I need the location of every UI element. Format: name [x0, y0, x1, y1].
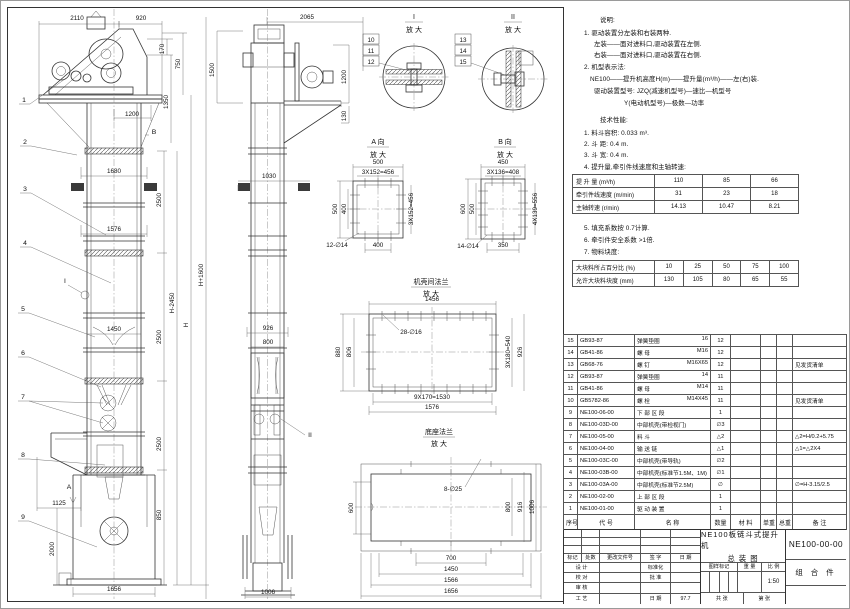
- bom-total-weight: [777, 371, 793, 383]
- note-line: 驱动装置型号: JZQ(减速机型号)—速比—机型号: [594, 86, 731, 95]
- bom-part-code: NE100-04-00: [578, 443, 635, 455]
- balloon-9: 9: [21, 514, 25, 521]
- bom-row: 1 NE100-01-00 驱 动 装 置 1: [564, 503, 847, 515]
- view-a-arrow-label: A: [67, 484, 72, 491]
- cell: 65: [741, 274, 770, 287]
- view-a-title: A 向: [371, 137, 384, 146]
- detail-ii-view: II 放 大 13 14 15: [455, 14, 548, 113]
- bom-part-code: NE100-06-00: [578, 407, 635, 419]
- role-approver: 批 准: [641, 573, 671, 582]
- tech-item: 7. 物料块度:: [584, 247, 619, 256]
- balloon-5: 5: [21, 306, 25, 313]
- cell: 50: [712, 261, 741, 274]
- role-checker: 校 对: [564, 573, 600, 582]
- dim-label: 2500: [156, 437, 163, 452]
- bom-total-weight: [777, 359, 793, 371]
- note-line: 右装——面对进料口,驱动装置在右侧.: [594, 50, 702, 59]
- bom-material: [731, 371, 761, 383]
- bom-item-number: 1: [564, 503, 578, 515]
- dim-label: 806: [346, 346, 353, 357]
- balloon-15: 15: [459, 59, 467, 66]
- dim-label: 2065: [300, 14, 315, 21]
- cell: 55: [770, 274, 799, 287]
- part-name-text: 料 斗: [637, 432, 650, 441]
- bom-row: 12 GB93-87 弹簧垫圈14 11: [564, 371, 847, 383]
- casing-flange-enlarged-view: 机壳间法兰 放 大 1456 880 806 28-∅16 3X180=540 …: [335, 277, 524, 415]
- bom-part-name: 螺 钉M16X65: [635, 359, 711, 371]
- bom-part-name: 中部机壳(标准节1.5M、1M): [635, 467, 711, 479]
- bom-unit-weight: [761, 395, 777, 407]
- dim-label: 2500: [156, 330, 163, 345]
- table-row: 牵引件线速度 (m/min) 31 23 18: [573, 188, 799, 201]
- dim-label: 170: [159, 43, 166, 54]
- bom-quantity: 1: [711, 491, 731, 503]
- bom-remark: [793, 491, 847, 503]
- bom-total-weight: [777, 479, 793, 491]
- rev-header-mark: 标记: [564, 554, 582, 562]
- bom-remark: [793, 407, 847, 419]
- bom-quantity: 12: [711, 347, 731, 359]
- detail-ii-balloons: 13 14 15: [455, 34, 505, 75]
- bom-unit-weight: [761, 443, 777, 455]
- dim-label: 1656: [107, 586, 122, 593]
- tech-item: 2. 斗 距: 0.4 m.: [584, 139, 628, 148]
- bom-item-number: 11: [564, 383, 578, 395]
- rev-header-count: 处数: [582, 554, 600, 562]
- view-b-title: B 向: [498, 137, 512, 146]
- bom-material: [731, 347, 761, 359]
- bom-item-number: 2: [564, 491, 578, 503]
- bom-row: 6 NE100-04-00 输 送 链 △1 △1=△2X4: [564, 443, 847, 455]
- part-name-text: 下 部 区 段: [637, 408, 665, 417]
- balloon-8: 8: [21, 452, 25, 459]
- part-name-text: 螺 栓: [637, 396, 650, 405]
- bom-material: [731, 395, 761, 407]
- tech-heading: 技术性能:: [600, 115, 628, 124]
- bom-part-name: 输 送 链: [635, 443, 711, 455]
- part-name-text: 中部机壳(带检视门): [637, 420, 686, 429]
- front-dimensions: 2110 920 170 750 1350 1200 1680 1576 145…: [37, 15, 209, 599]
- scale-value: 1:50: [762, 572, 785, 592]
- side-elevation-view: 2065 1500 1200 130 1030 926 800 1006 II: [209, 9, 363, 599]
- bom-quantity: 11: [711, 371, 731, 383]
- bom-part-name: 中部机壳(带检视门): [635, 419, 711, 431]
- note-line: 左装——面对进料口,驱动装置在左侧.: [594, 39, 702, 48]
- bom-header: 数量: [711, 515, 731, 530]
- balloon-4: 4: [23, 240, 27, 247]
- bom-part-name: 弹簧垫圈16: [635, 335, 711, 347]
- dim-label: H+1600: [198, 263, 205, 286]
- balloon-12: 12: [367, 59, 375, 66]
- bom-row: 4 NE100-03B-00 中部机壳(标准节1.5M、1M) ∅1: [564, 467, 847, 479]
- view-b-enlarged: B 向 放 大 450 3X136=408 600 500 4X139=556 …: [457, 137, 539, 253]
- bom-item-number: 12: [564, 371, 578, 383]
- dim-label: 3X180=540: [505, 335, 512, 368]
- part-name-text: 螺 母: [637, 348, 650, 357]
- base-flange-subtitle: 放 大: [431, 439, 447, 448]
- bom-part-code: NE100-03A-00: [578, 479, 635, 491]
- cell: 130: [655, 274, 684, 287]
- row-label: 大块料所占百分比 (%): [573, 261, 655, 274]
- tech-item: 6. 牵引件安全系数 >1倍.: [584, 235, 655, 244]
- bom-header: 备 注: [793, 515, 847, 530]
- date-label: 日 期: [641, 594, 671, 604]
- bom-material: [731, 383, 761, 395]
- rev-header-docno: 更改文件号: [600, 554, 641, 562]
- casing-flange-title: 机壳间法兰: [414, 277, 449, 286]
- dim-label: 1450: [444, 566, 459, 573]
- dim-label: 2500: [156, 193, 163, 208]
- bom-unit-weight: [761, 347, 777, 359]
- role-reviewer: 审 核: [564, 583, 600, 592]
- table-row: 主轴转速 (r/min) 14.13 10.47 8.21: [573, 201, 799, 214]
- dim-label: 4X139=556: [532, 192, 539, 225]
- dim-label: 920: [136, 15, 147, 22]
- detail-ii-subtitle: 放 大: [505, 25, 521, 34]
- bom-quantity: 1: [711, 407, 731, 419]
- bom-header: 单重: [761, 515, 777, 530]
- hole-callout: 8-∅25: [444, 486, 463, 493]
- bom-row: 8 NE100-03D-00 中部机壳(带检视门) ∅3: [564, 419, 847, 431]
- dim-label: 3X136=408: [487, 169, 520, 176]
- part-spec-text: M16: [697, 348, 708, 357]
- note-line: 2. 机型表示法:: [584, 62, 626, 71]
- view-b-arrow-label: B: [152, 129, 157, 136]
- detail-i-marker-label: I: [64, 278, 66, 285]
- cell: 31: [655, 188, 703, 201]
- bom-remark: [793, 347, 847, 359]
- dim-label: 2110: [70, 15, 84, 22]
- hole-callout: 12-∅14: [326, 242, 348, 249]
- part-spec-text: M14X45: [687, 396, 708, 405]
- dim-label: 1030: [262, 173, 277, 180]
- dim-label: 1450: [107, 326, 122, 333]
- bom-part-code: NE100-03B-00: [578, 467, 635, 479]
- bom-material: [731, 503, 761, 515]
- bom-total-weight: [777, 455, 793, 467]
- cell: 75: [741, 261, 770, 274]
- dim-label: 800: [505, 501, 512, 512]
- detail-ii-marker-label: II: [308, 432, 312, 439]
- dim-label: 926: [263, 325, 274, 332]
- bom-item-number: 15: [564, 335, 578, 347]
- dim-label: 1656: [444, 588, 459, 595]
- bom-total-weight: [777, 407, 793, 419]
- bom-part-code: NE100-05-00: [578, 431, 635, 443]
- dim-label: 1006: [261, 589, 276, 596]
- bom-unit-weight: [761, 359, 777, 371]
- part-spec-text: 16: [702, 336, 708, 345]
- bom-part-name: 中部机壳(标准节2.5M): [635, 479, 711, 491]
- bom-header: 代 号: [578, 515, 635, 530]
- bom-part-name: 上 部 区 段: [635, 491, 711, 503]
- dim-label: 1125: [52, 500, 66, 507]
- bom-material: [731, 359, 761, 371]
- cell: 66: [751, 175, 799, 188]
- lump-size-table: 大块料所占百分比 (%) 10 25 50 75 100 允许大块料块度 (mm…: [572, 260, 799, 287]
- bom-row: 10 GB5782-86 螺 栓M14X45 11 见发货清单: [564, 395, 847, 407]
- bom-row: 2 NE100-02-00 上 部 区 段 1: [564, 491, 847, 503]
- title-block-center: NE100板链斗式提升机 总 装 图 图样标记 重 量 比 例 1:50: [701, 530, 786, 604]
- bom-remark: 见发货清单: [793, 395, 847, 407]
- bom-remark: △2=H/0.2+5.75: [793, 431, 847, 443]
- bom-remark: [793, 455, 847, 467]
- bom-part-code: NE100-03D-00: [578, 419, 635, 431]
- bom-quantity: 11: [711, 383, 731, 395]
- bom-remark: [793, 335, 847, 347]
- bom-unit-weight: [761, 467, 777, 479]
- part-name-text: 中部机壳(标准节2.5M): [637, 480, 693, 489]
- dim-label: 1006: [529, 500, 536, 515]
- table-row: 允许大块料块度 (mm) 130 105 80 65 55: [573, 274, 799, 287]
- dim-label: 500: [373, 159, 384, 166]
- notes-heading: 说明:: [600, 15, 615, 24]
- bom-item-number: 7: [564, 431, 578, 443]
- bom-material: [731, 455, 761, 467]
- bom-quantity: ∅3: [711, 419, 731, 431]
- part-category: 组 合 件: [786, 560, 846, 586]
- dim-label: 9X170=1530: [414, 394, 450, 401]
- bom-row: 3 NE100-03A-00 中部机壳(标准节2.5M) ∅ ∅=H-3.15/…: [564, 479, 847, 491]
- role-standardization: 标准化: [641, 563, 671, 572]
- detail-i-title: I: [413, 14, 415, 21]
- part-spec-text: M14: [697, 384, 708, 393]
- bom-part-code: GB5782-86: [578, 395, 635, 407]
- bom-row: 9 NE100-06-00 下 部 区 段 1: [564, 407, 847, 419]
- row-label: 提 升 量 (m³/h): [573, 175, 655, 188]
- dim-label: 916: [517, 501, 524, 512]
- dim-label: 400: [341, 203, 348, 214]
- cell: 10: [655, 261, 684, 274]
- rev-header-date: 日 期: [671, 554, 700, 562]
- base-flange-dimensions: 600 8-∅25 800 916 1006 700 1450 1566 165…: [348, 459, 541, 599]
- capacity-speed-table: 提 升 量 (m³/h) 110 85 66 牵引件线速度 (m/min) 31…: [572, 174, 799, 214]
- bom-table: 15 GB93-87 弹簧垫圈16 12 14 GB41-86 螺 母M16: [563, 334, 847, 530]
- cell: 110: [655, 175, 703, 188]
- bom-part-code: NE100-01-00: [578, 503, 635, 515]
- stamp-header-scale: 比 例: [762, 563, 785, 571]
- bom-part-name: 中部机壳(带导轨): [635, 455, 711, 467]
- bom-part-name: 驱 动 装 置: [635, 503, 711, 515]
- bom-material: [731, 443, 761, 455]
- bom-row: 14 GB41-86 螺 母M16 12: [564, 347, 847, 359]
- bom-item-number: 13: [564, 359, 578, 371]
- dim-label: 350: [498, 242, 509, 249]
- bom-body: 15 GB93-87 弹簧垫圈16 12 14 GB41-86 螺 母M16: [564, 335, 847, 515]
- hole-callout: 14-∅14: [457, 243, 479, 250]
- cell: 80: [712, 274, 741, 287]
- bom-unit-weight: [761, 503, 777, 515]
- weight-value: [738, 572, 762, 592]
- dim-label: 450: [498, 159, 509, 166]
- base-flange-enlarged-view: 底座法兰 放 大 600 8-∅25 800 916 1006 700: [348, 427, 547, 599]
- dim-label: 1350: [163, 95, 170, 110]
- detail-ii-title: II: [511, 14, 515, 21]
- bom-material: [731, 431, 761, 443]
- note-line: Y(电动机型号)—极数—功率: [624, 98, 704, 107]
- bom-row: 11 GB41-86 螺 母M14 11: [564, 383, 847, 395]
- bom-total-weight: [777, 335, 793, 347]
- bom-item-number: 3: [564, 479, 578, 491]
- row-label: 允许大块料块度 (mm): [573, 274, 655, 287]
- bom-item-number: 6: [564, 443, 578, 455]
- table-row: 提 升 量 (m³/h) 110 85 66: [573, 175, 799, 188]
- dim-label: H-2450: [169, 292, 176, 313]
- dim-label: 3X152=456: [408, 192, 415, 225]
- bom-part-code: NE100-02-00: [578, 491, 635, 503]
- bom-item-number: 4: [564, 467, 578, 479]
- bom-total-weight: [777, 443, 793, 455]
- balloon-13: 13: [459, 37, 467, 44]
- bom-part-name: 下 部 区 段: [635, 407, 711, 419]
- bom-quantity: 1: [711, 503, 731, 515]
- cell: 8.21: [751, 201, 799, 214]
- tech-item: 3. 斗 宽: 0.4 m.: [584, 150, 628, 159]
- bom-total-weight: [777, 491, 793, 503]
- title-block-revision-area: 标记 处数 更改文件号 签 字 日 期 设 计 标准化 校 对 批 准: [564, 530, 701, 604]
- part-name-text: 中部机壳(标准节1.5M、1M): [637, 468, 707, 477]
- bom-material: [731, 335, 761, 347]
- bom-quantity: 12: [711, 335, 731, 347]
- dim-label: 1680: [107, 168, 122, 175]
- right-panel: 说明: 1. 驱动装置分左装和右装两种. 左装——面对进料口,驱动装置在左侧. …: [563, 7, 845, 604]
- bom-unit-weight: [761, 491, 777, 503]
- bom-unit-weight: [761, 407, 777, 419]
- view-a-dimensions: 500 3X152=456 500 400 3X152=456 400 12-∅…: [326, 159, 415, 253]
- bom-item-number: 14: [564, 347, 578, 359]
- bom-item-number: 8: [564, 419, 578, 431]
- bom-item-number: 10: [564, 395, 578, 407]
- dim-label: 750: [175, 58, 182, 69]
- balloon-1: 1: [22, 97, 26, 104]
- row-label: 牵引件线速度 (m/min): [573, 188, 655, 201]
- dim-label: 850: [156, 509, 163, 520]
- dim-label: 1200: [341, 70, 348, 85]
- bom-unit-weight: [761, 479, 777, 491]
- bom-header: 材 料: [731, 515, 761, 530]
- dim-label: 130: [341, 110, 348, 121]
- bom-total-weight: [777, 503, 793, 515]
- dim-label: 500: [332, 203, 339, 214]
- cell: 23: [703, 188, 751, 201]
- bom-part-name: 弹簧垫圈14: [635, 371, 711, 383]
- bom-total-weight: [777, 383, 793, 395]
- table-row: 大块料所占百分比 (%) 10 25 50 75 100: [573, 261, 799, 274]
- view-a-enlarged: A 向 放 大 500 3X152=456 500 400 3X152=456 …: [326, 137, 415, 253]
- title-block-number-area: NE100-00-00 组 合 件: [786, 530, 846, 604]
- cell: 100: [770, 261, 799, 274]
- bom-row: 7 NE100-05-00 料 斗 △2 △2=H/0.2+5.75: [564, 431, 847, 443]
- note-line: 1. 驱动装置分左装和右装两种.: [584, 28, 671, 37]
- part-spec-text: M16X65: [687, 360, 708, 369]
- base-flange-title: 底座法兰: [425, 427, 453, 436]
- dim-label: 700: [446, 555, 457, 562]
- part-name-text: 输 送 链: [637, 444, 657, 453]
- tech-item: 1. 料斗容积: 0.033 m³.: [584, 128, 649, 137]
- rev-header-signature: 签 字: [641, 554, 671, 562]
- part-name-text: 弹簧垫圈: [637, 372, 660, 381]
- bom-unit-weight: [761, 383, 777, 395]
- sheet-number-label: 第 张: [744, 593, 786, 604]
- balloon-14: 14: [459, 48, 467, 55]
- role-designer: 设 计: [564, 563, 600, 572]
- bom-quantity: ∅2: [711, 455, 731, 467]
- part-name-text: 中部机壳(带导轨): [637, 456, 681, 465]
- drawing-title-line1: NE100板链斗式提升机: [701, 529, 785, 551]
- balloon-2: 2: [23, 139, 27, 146]
- bom-quantity: 12: [711, 359, 731, 371]
- bom-quantity: ∅1: [711, 467, 731, 479]
- drawing-number: NE100-00-00: [786, 530, 846, 560]
- bom-row: 13 GB68-76 螺 钉M16X65 12 见发货清单: [564, 359, 847, 371]
- bom-part-name: 螺 栓M14X45: [635, 395, 711, 407]
- balloon-7: 7: [21, 394, 25, 401]
- detail-i-subtitle: 放 大: [406, 25, 422, 34]
- bom-unit-weight: [761, 371, 777, 383]
- bom-row: 15 GB93-87 弹簧垫圈16 12: [564, 335, 847, 347]
- bom-material: [731, 407, 761, 419]
- dim-label: 500: [469, 203, 476, 214]
- drawing-title-line2: 总 装 图: [727, 553, 758, 564]
- bom-unit-weight: [761, 419, 777, 431]
- dim-label: 600: [460, 203, 467, 214]
- title-block: 标记 处数 更改文件号 签 字 日 期 设 计 标准化 校 对 批 准: [564, 529, 846, 604]
- bom-part-code: GB93-87: [578, 335, 635, 347]
- cell: 105: [683, 274, 712, 287]
- bom-header: 总重: [777, 515, 793, 530]
- dim-label: 1500: [209, 63, 216, 78]
- bom-remark: [793, 467, 847, 479]
- bom-header: 名 称: [635, 515, 711, 530]
- dim-label: 1576: [425, 404, 440, 411]
- role-process: 工 艺: [564, 594, 600, 604]
- bom-header-row: 序号 代 号 名 称 数量 材 料 单重 总重 备 注: [564, 515, 847, 530]
- bom-material: [731, 467, 761, 479]
- balloon-3: 3: [23, 186, 27, 193]
- cell: 14.13: [655, 201, 703, 214]
- part-spec-text: 14: [702, 372, 708, 381]
- dim-label: 800: [263, 339, 274, 346]
- bom-quantity: △1: [711, 443, 731, 455]
- bom-part-code: GB68-76: [578, 359, 635, 371]
- bom-remark: 见发货清单: [793, 359, 847, 371]
- sheet-count-label: 共 张: [701, 593, 744, 604]
- bom-part-name: 螺 母M16: [635, 347, 711, 359]
- bom-total-weight: [777, 431, 793, 443]
- part-name-text: 上 部 区 段: [637, 492, 665, 501]
- bom-material: [731, 419, 761, 431]
- bom-material: [731, 491, 761, 503]
- dim-label: 2000: [49, 542, 56, 557]
- cell: 85: [703, 175, 751, 188]
- cell: 18: [751, 188, 799, 201]
- view-a-subtitle: 放 大: [370, 150, 386, 159]
- dim-label: H: [183, 322, 190, 327]
- part-name-text: 螺 母: [637, 384, 650, 393]
- dim-label: 1576: [107, 226, 122, 233]
- side-dimensions: 2065 1500 1200 130 1030 926 800 1006 II: [209, 14, 363, 599]
- balloon-10: 10: [367, 37, 375, 44]
- bom-material: [731, 479, 761, 491]
- bom-quantity: ∅: [711, 479, 731, 491]
- hole-callout: 28-∅16: [400, 329, 422, 336]
- bom-remark: [793, 371, 847, 383]
- bom-unit-weight: [761, 431, 777, 443]
- bom-part-name: 螺 母M14: [635, 383, 711, 395]
- bom-part-name: 料 斗: [635, 431, 711, 443]
- bom-part-code: NE100-03C-00: [578, 455, 635, 467]
- dim-label: 880: [335, 346, 342, 357]
